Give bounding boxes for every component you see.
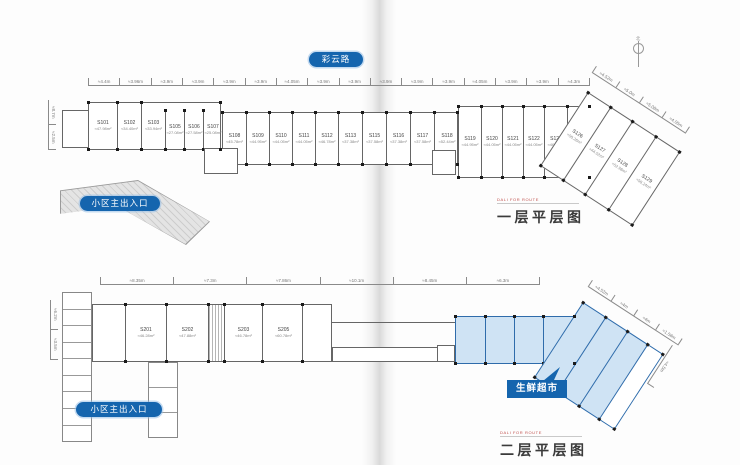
dimension-label: ≈8.35m [100, 277, 174, 284]
unit-id: S113 [345, 134, 356, 139]
unit-id: S116 [393, 134, 404, 139]
dimension-label: ≈4m [634, 310, 660, 330]
grid-cell [149, 363, 177, 388]
page-fold-gutter [362, 0, 396, 465]
unit-area: ≈46.78m² [235, 334, 252, 338]
dimension-label: ≈3.5m [51, 330, 58, 360]
grid-cell [63, 310, 91, 327]
unit-area: ≈27.08m² [167, 131, 184, 135]
dimension-label: ≈3.9m [308, 78, 339, 85]
plan2-title-block: DALI FOR ROUTE 二层平层图 [500, 430, 588, 460]
unit-area: ≈60.78m² [275, 334, 292, 338]
plan2-corridor-annex [437, 345, 455, 362]
dimension-label: ≈3.9m [152, 78, 183, 85]
unit-S117: S117≈37.58m² [410, 113, 434, 164]
plan2-dimension-col-left: ≈6.2m≈3.5m [50, 300, 58, 360]
unit-id: S118 [441, 134, 452, 139]
dimension-label: ≈10.1m [321, 277, 394, 284]
dimension-label: ≈3.9m [433, 78, 464, 85]
unit-S105: S105≈27.08m² [165, 111, 184, 149]
dimension-label: ≈7.86m [247, 277, 320, 284]
unit-cell [208, 305, 224, 361]
unit-area: ≈44.05m² [505, 143, 522, 147]
unit-area: ≈27.58m² [186, 131, 203, 135]
unit-area: ≈44.95m² [250, 140, 267, 144]
dimension-label: ≈6.2m [51, 300, 58, 330]
unit-area: ≈34.40m² [121, 127, 138, 131]
plan1-service-annex [432, 150, 456, 175]
plan1-subtitle: DALI FOR ROUTE [497, 197, 579, 204]
unit-area: ≈47.98m² [95, 127, 112, 131]
unit-S106: S106≈27.58m² [184, 111, 203, 149]
plan1-title: 一层平层图 [497, 207, 585, 227]
unit-id: S112 [321, 134, 332, 139]
plan2-title: 二层平层图 [500, 440, 588, 460]
unit-id: S115 [369, 134, 380, 139]
unit-S205: S205≈60.78m² [262, 305, 304, 361]
dimension-label: ≈5.0m [616, 82, 643, 103]
plan1-entrance-area [60, 180, 210, 245]
dimension-label: ≈6.3m [467, 277, 540, 284]
unit-S109: S109≈44.95m² [246, 113, 269, 164]
entrance-badge-top: 小区主出入口 [80, 196, 160, 211]
plan1-stair-annex [204, 148, 238, 174]
unit-cell [456, 317, 485, 363]
unit-area: ≈47.88m² [179, 334, 196, 338]
unit-cell [514, 317, 543, 363]
unit-area: ≈44.95m² [462, 143, 479, 147]
unit-S112: S112≈46.78m² [315, 113, 338, 164]
unit-S121: S121≈44.05m² [502, 107, 523, 177]
dimension-label: ≈8.7m [49, 100, 56, 125]
dimension-label: ≈4.52m [592, 66, 620, 88]
unit-S116: S116≈37.38m² [386, 113, 410, 164]
grid-cell [63, 343, 91, 360]
plan1-dimension-row: ≈4.4m≈3.96m≈3.9m≈3.9m≈3.9m≈3.9m≈4.05m≈3.… [88, 78, 590, 86]
dimension-label: ≈4.4m [88, 78, 120, 85]
unit-area: ≈44.05m² [526, 143, 543, 147]
unit-area: ≈37.58m² [414, 140, 431, 144]
unit-area: ≈33.94m² [145, 127, 162, 131]
dimension-label: ≈1.58m [656, 324, 682, 344]
plan2-left-cell-strip [62, 292, 92, 442]
unit-area: ≈46.28m² [138, 334, 155, 338]
dimension-label: ≈2.5m [49, 125, 56, 150]
dimension-label: ≈5.08m [640, 97, 667, 118]
grid-cell [63, 426, 91, 442]
entrance-badge-bottom: 小区主出入口 [76, 402, 162, 417]
unit-id: S109 [252, 134, 264, 139]
unit-S101: S101≈47.98m² [89, 103, 117, 149]
plan1-title-block: DALI FOR ROUTE 一层平层图 [497, 197, 585, 227]
unit-S201: S201≈46.28m² [126, 305, 166, 361]
unit-area: ≈37.38m² [390, 140, 407, 144]
unit-S202: S202≈47.88m² [166, 305, 208, 361]
unit-cell [485, 317, 514, 363]
unit-area: ≈44.05m² [484, 143, 501, 147]
unit-id: S110 [275, 134, 286, 139]
north-arrow-icon: 北 [630, 36, 646, 68]
road-name-badge: 彩云路 [309, 52, 363, 67]
unit-S107: S107≈25.08m² [203, 111, 222, 149]
dimension-label: ≈3.9m [183, 78, 214, 85]
dimension-label: ≈4.05m [465, 78, 496, 85]
unit-area: ≈37.58m² [366, 140, 383, 144]
unit-S103: S103≈33.94m² [141, 103, 165, 149]
plan2-lower-cell-strip [148, 362, 178, 438]
unit-S115: S115≈37.58m² [362, 113, 386, 164]
dimension-label: ≈3.9m [340, 78, 371, 85]
unit-S102: S102≈34.40m² [117, 103, 141, 149]
dimension-label: ≈4.05m [663, 112, 690, 133]
unit-S203: S203≈46.78m² [224, 305, 262, 361]
unit-area: ≈44.05m² [296, 140, 313, 144]
unit-area: ≈25.08m² [205, 131, 222, 135]
plan2-units-row: S201≈46.28m²S202≈47.88m²S203≈46.78m²S205… [125, 304, 303, 362]
dimension-label: ≈4.52m [588, 280, 615, 301]
plan1-block2-row: S108≈45.78m²S109≈44.95m²S110≈44.05m²S111… [222, 112, 458, 165]
unit-S110: S110≈44.05m² [269, 113, 292, 164]
grid-cell [63, 359, 91, 376]
dimension-label: ≈3.9m [527, 78, 558, 85]
dimension-label: ≈4m [611, 295, 637, 315]
dimension-label: ≈3.9m [402, 78, 433, 85]
plan1-dimension-col-left: ≈8.7m≈2.5m [48, 100, 56, 150]
unit-area: ≈37.38m² [342, 140, 359, 144]
plan2-subtitle: DALI FOR ROUTE [500, 430, 582, 437]
plan1-annex-room [62, 110, 89, 148]
plan1-block1-row: S101≈47.98m²S102≈34.40m²S103≈33.94m²S105… [88, 102, 221, 150]
dimension-label: ≈4.3m [559, 78, 590, 85]
unit-id: S108 [229, 134, 241, 139]
dimension-label: ≈8.45m [394, 277, 467, 284]
dimension-label: ≈4.05m [277, 78, 308, 85]
unit-S111: S111≈44.05m² [292, 113, 315, 164]
dimension-label: ≈7.3m [174, 277, 247, 284]
unit-id: S111 [299, 134, 310, 139]
unit-area: ≈52.44m² [439, 140, 456, 144]
unit-S120: S120≈44.05m² [481, 107, 502, 177]
dimension-label: ≈3.9m [214, 78, 245, 85]
dimension-label: ≈3.9m [371, 78, 402, 85]
brochure-spread: 北 彩云路 ≈4.4m≈3.96m≈3.9m≈3.9m≈3.9m≈3.9m≈4.… [0, 0, 740, 465]
supermarket-badge: 生鲜超市 [507, 380, 567, 398]
plan2-upper-wall [332, 322, 455, 323]
grid-cell [63, 376, 91, 393]
unit-area: ≈44.05m² [273, 140, 290, 144]
entrance-hatch [61, 181, 209, 244]
grid-cell [63, 293, 91, 310]
unit-id: S117 [417, 134, 428, 139]
unit-S113: S113≈37.38m² [338, 113, 362, 164]
plan2-dimension-row: ≈8.35m≈7.3m≈7.86m≈10.1m≈8.45m≈6.3m [100, 277, 540, 285]
grid-cell [63, 326, 91, 343]
unit-area: ≈46.78m² [319, 140, 336, 144]
unit-area: ≈45.78m² [226, 140, 243, 144]
dimension-label: ≈3.9m [246, 78, 277, 85]
dimension-label: ≈3.96m [120, 78, 151, 85]
unit-S119: S119≈44.95m² [459, 107, 481, 177]
dimension-label: ≈3.9m [496, 78, 527, 85]
